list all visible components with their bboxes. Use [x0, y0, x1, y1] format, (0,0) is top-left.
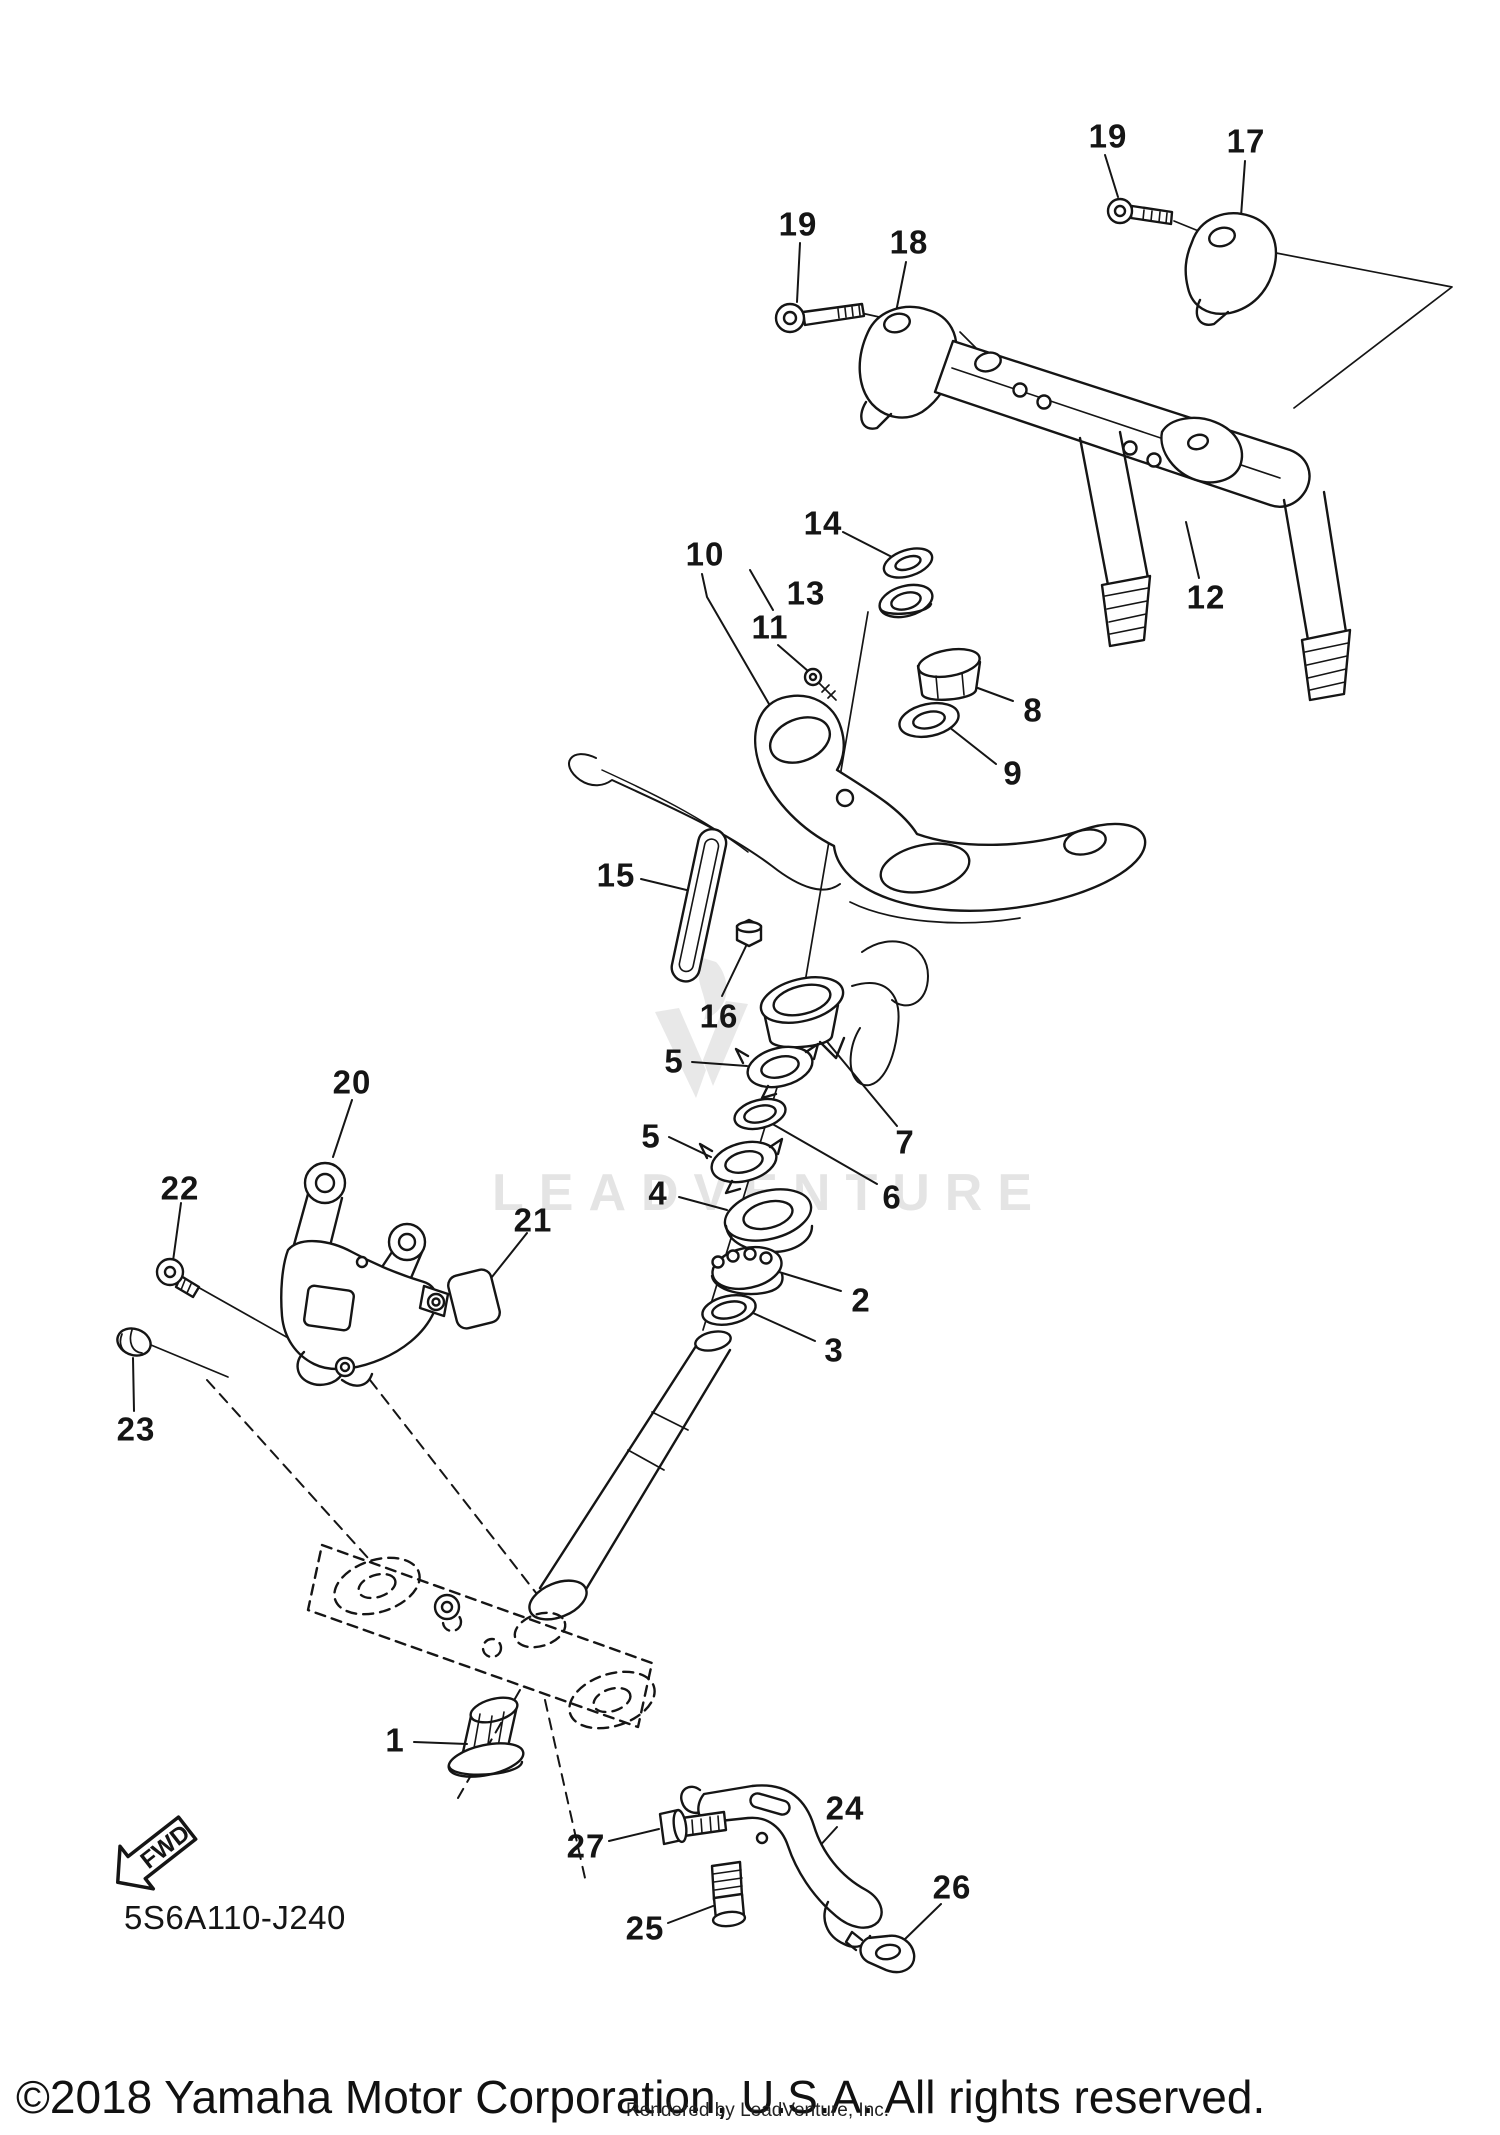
- parts-diagram-page: LEADVENTURE: [0, 0, 1500, 2135]
- part-callout-26: 26: [933, 1871, 972, 1904]
- part-callout-5: 5: [664, 1045, 683, 1078]
- part-callout-22: 22: [161, 1172, 200, 1205]
- callout-layer: 1918191714101311128915165756423202221231…: [0, 0, 1500, 2135]
- part-callout-20: 20: [333, 1066, 372, 1099]
- part-callout-25: 25: [626, 1912, 665, 1945]
- part-callout-19: 19: [779, 208, 818, 241]
- part-callout-14: 14: [804, 507, 843, 540]
- rendered-by-text: Rendered by LeadVenture, Inc.: [626, 2100, 889, 2122]
- part-callout-24: 24: [826, 1792, 865, 1825]
- part-callout-7: 7: [895, 1126, 914, 1159]
- part-callout-12: 12: [1187, 581, 1226, 614]
- part-callout-5: 5: [641, 1120, 660, 1153]
- part-callout-21: 21: [514, 1204, 553, 1237]
- part-callout-23: 23: [117, 1413, 156, 1446]
- part-callout-17: 17: [1227, 125, 1266, 158]
- part-callout-19: 19: [1089, 120, 1128, 153]
- part-callout-18: 18: [890, 226, 929, 259]
- part-callout-3: 3: [824, 1334, 843, 1367]
- part-callout-13: 13: [787, 577, 826, 610]
- part-callout-2: 2: [851, 1284, 870, 1317]
- part-callout-10: 10: [686, 538, 725, 571]
- part-callout-27: 27: [567, 1830, 606, 1863]
- part-callout-1: 1: [385, 1724, 404, 1757]
- part-callout-15: 15: [597, 859, 636, 892]
- part-callout-9: 9: [1003, 757, 1022, 790]
- part-callout-11: 11: [752, 611, 789, 644]
- part-callout-8: 8: [1023, 694, 1042, 727]
- part-callout-16: 16: [700, 1000, 739, 1033]
- part-callout-6: 6: [882, 1181, 901, 1214]
- part-callout-4: 4: [648, 1177, 667, 1210]
